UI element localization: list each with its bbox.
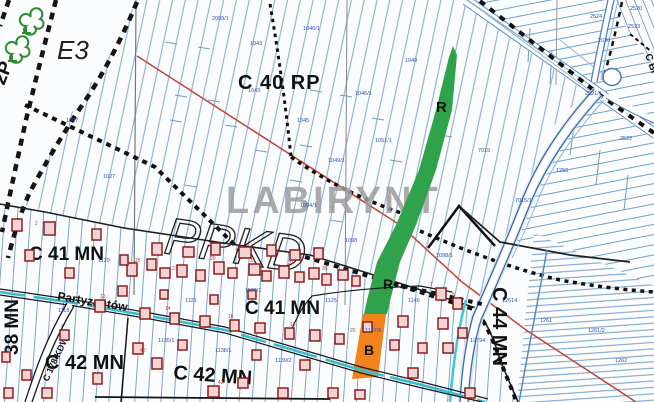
svg-text:B: B [364,342,374,358]
svg-text:1046/1: 1046/1 [303,26,320,32]
svg-text:2522: 2522 [620,136,632,142]
svg-text:5: 5 [452,292,455,298]
svg-text:27: 27 [172,266,178,272]
svg-text:C 42 MN: C 42 MN [45,352,124,374]
svg-text:12794: 12794 [470,338,485,344]
svg-text:2020: 2020 [598,38,610,44]
svg-text:29: 29 [210,256,216,262]
svg-text:1043: 1043 [248,88,260,94]
svg-text:20: 20 [350,328,356,334]
svg-text:16: 16 [228,314,234,320]
svg-text:1027: 1027 [103,174,115,180]
svg-text:1043: 1043 [250,41,262,47]
svg-text:1098: 1098 [345,238,357,244]
svg-text:2: 2 [35,221,38,227]
svg-text:1138/1: 1138/1 [215,348,231,354]
svg-text:1125: 1125 [325,298,337,304]
svg-text:2524: 2524 [590,14,602,20]
svg-text:2521/1: 2521/1 [585,91,602,97]
svg-text:7015/1: 7015/1 [515,198,532,204]
svg-text:1027: 1027 [66,118,78,124]
svg-text:R: R [436,99,447,116]
svg-text:18: 18 [290,322,296,328]
svg-text:42: 42 [218,380,224,386]
svg-text:33: 33 [288,260,294,266]
svg-text:1129: 1129 [98,258,110,264]
svg-text:C 41 MN: C 41 MN [29,244,104,265]
svg-text:1049: 1049 [405,58,417,64]
svg-text:14: 14 [165,306,171,312]
svg-text:1046/1: 1046/1 [355,91,372,97]
svg-text:12614: 12614 [502,298,517,304]
svg-text:40: 40 [140,348,146,354]
svg-text:2520: 2520 [630,6,642,12]
svg-text:C 41 MN: C 41 MN [245,298,320,319]
svg-text:7015: 7015 [478,148,490,154]
svg-text:1045: 1045 [297,118,309,124]
svg-text:2009/1: 2009/1 [212,16,229,22]
svg-text:R: R [383,276,393,292]
svg-text:2523: 2523 [628,24,640,30]
svg-text:1094/1: 1094/1 [300,203,317,209]
svg-text:25: 25 [135,258,141,264]
svg-text:1147/5: 1147/5 [365,328,381,334]
svg-text:12: 12 [100,294,106,300]
svg-text:E3: E3 [57,35,89,65]
svg-text:35: 35 [322,266,328,272]
svg-text:1098/1: 1098/1 [436,253,453,259]
svg-text:1250: 1250 [556,168,568,174]
svg-text:1261: 1261 [540,318,552,324]
svg-text:7: 7 [430,282,433,288]
svg-text:1049/1: 1049/1 [328,158,345,164]
svg-text:1146: 1146 [408,298,420,304]
svg-text:1139/2: 1139/2 [275,358,291,364]
svg-text:38 MN: 38 MN [2,299,23,355]
svg-text:1118: 1118 [58,308,69,314]
svg-text:1051/1: 1051/1 [375,138,392,144]
svg-text:31: 31 [250,258,256,264]
svg-text:1121: 1121 [185,298,197,304]
svg-text:1135/1: 1135/1 [158,338,174,344]
svg-text:1261/2: 1261/2 [588,328,605,334]
svg-text:1262: 1262 [615,358,627,364]
svg-text:1123/1: 1123/1 [245,288,261,294]
